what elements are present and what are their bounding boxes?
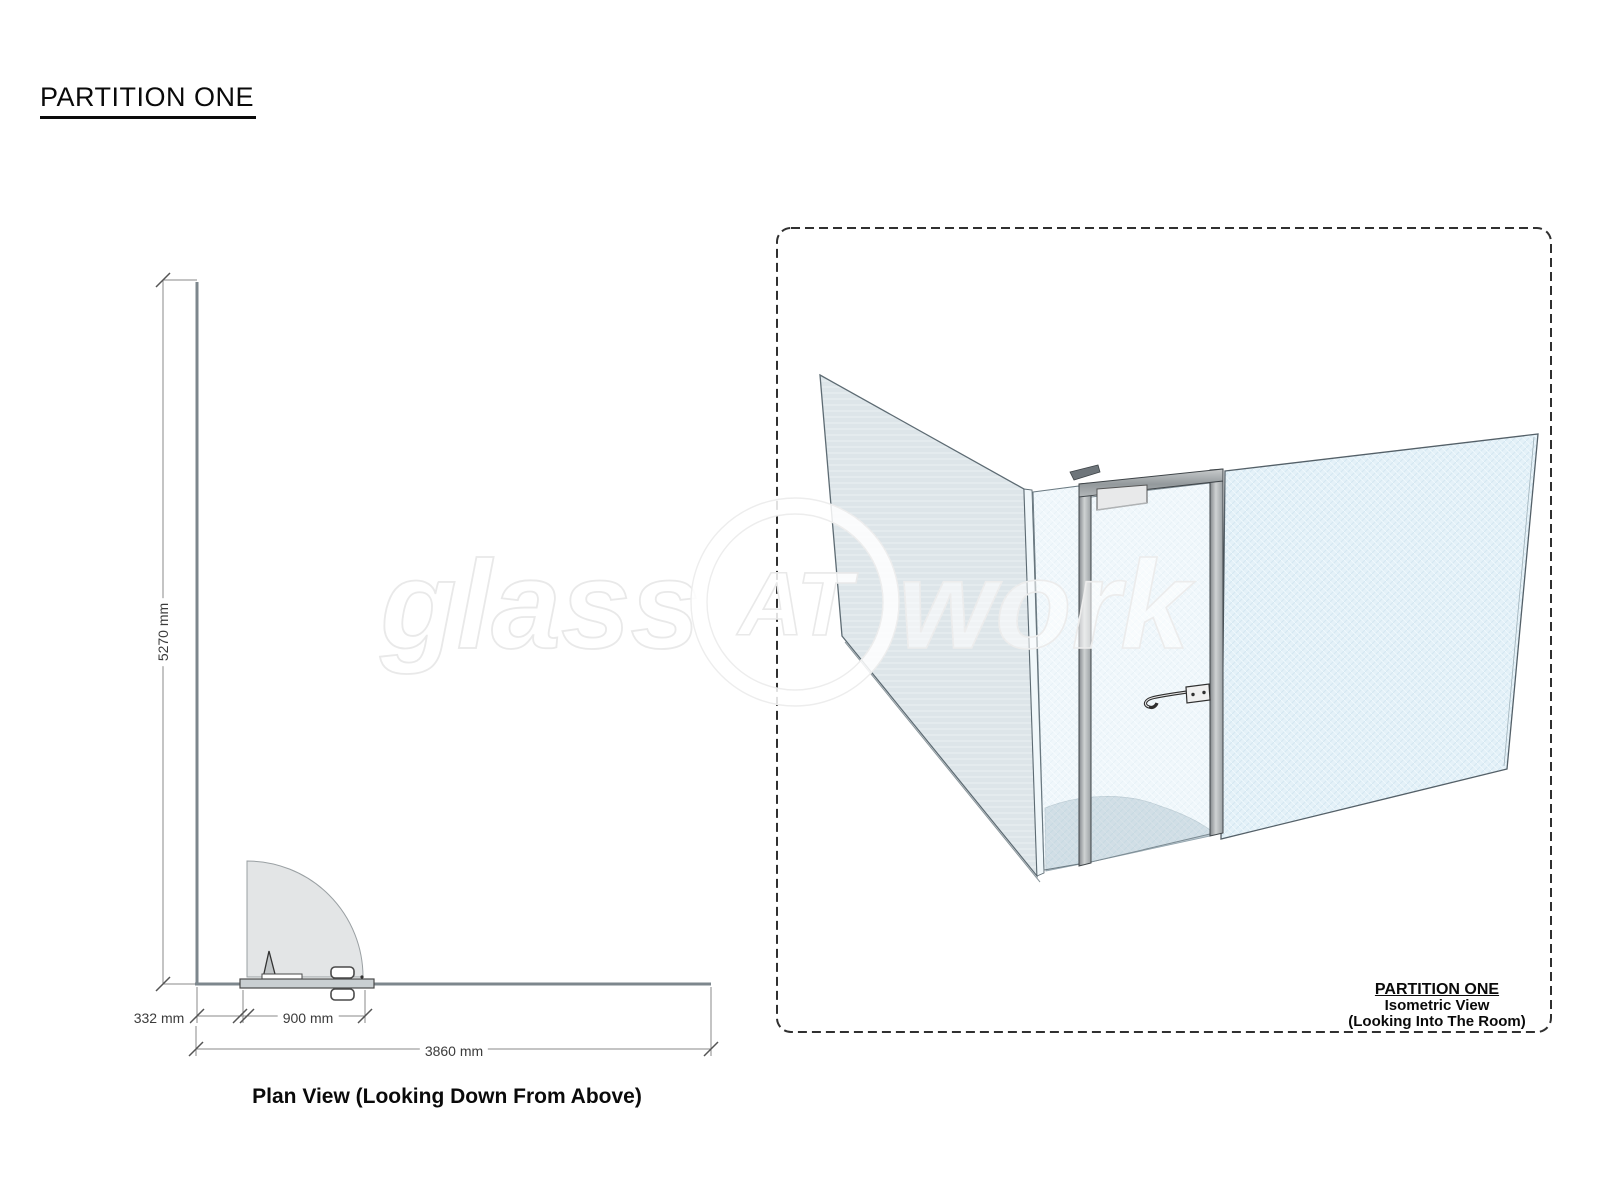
page-title: PARTITION ONE bbox=[40, 82, 256, 119]
door-closer-arm-iso bbox=[1070, 465, 1100, 480]
plan-dimension-lines bbox=[163, 280, 711, 1056]
drawing-sheet: glass AT work PARTITION ONE 5270 mm 332 … bbox=[0, 0, 1600, 1200]
dimension-door-width: 900 mm bbox=[278, 1010, 339, 1026]
isometric-view-label: PARTITION ONE Isometric View (Looking In… bbox=[1348, 982, 1525, 1030]
dimension-left-offset: 332 mm bbox=[129, 1010, 190, 1026]
plan-view-drawing bbox=[156, 273, 718, 1056]
dimension-ticks bbox=[156, 273, 718, 1056]
door-frame-right-post bbox=[1210, 469, 1223, 836]
dimension-height: 5270 mm bbox=[155, 598, 171, 666]
dimension-total-width: 3860 mm bbox=[420, 1043, 488, 1059]
isometric-view-drawing bbox=[777, 228, 1551, 1032]
plan-door-latch-dot bbox=[360, 975, 363, 978]
isometric-label-line3: (Looking Into The Room) bbox=[1348, 1014, 1525, 1030]
plan-door-leaf bbox=[240, 979, 374, 988]
glass-panel-right bbox=[1221, 434, 1538, 839]
isometric-label-line2: Isometric View bbox=[1348, 998, 1525, 1014]
isometric-label-title: PARTITION ONE bbox=[1348, 982, 1525, 998]
plan-door-swing-arc bbox=[247, 861, 363, 977]
glass-panel-left bbox=[820, 375, 1037, 876]
glass-door-leaf bbox=[1091, 483, 1210, 862]
plan-view-caption: Plan View (Looking Down From Above) bbox=[252, 1085, 642, 1109]
door-frame-left-post bbox=[1079, 483, 1091, 866]
